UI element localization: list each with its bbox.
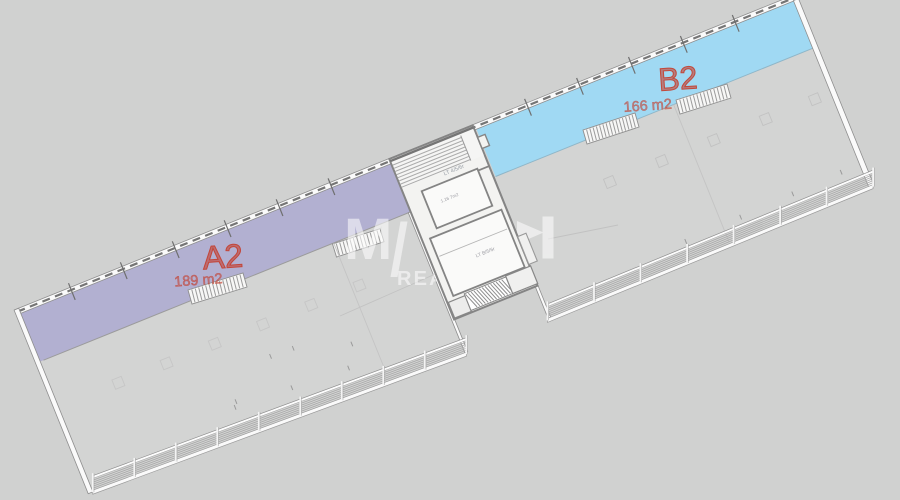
svg-text:189 m2: 189 m2	[174, 271, 223, 290]
svg-text:A2: A2	[201, 237, 244, 277]
svg-text:M: M	[344, 207, 392, 272]
svg-text:B2: B2	[657, 59, 699, 98]
svg-text:166 m2: 166 m2	[623, 97, 672, 116]
